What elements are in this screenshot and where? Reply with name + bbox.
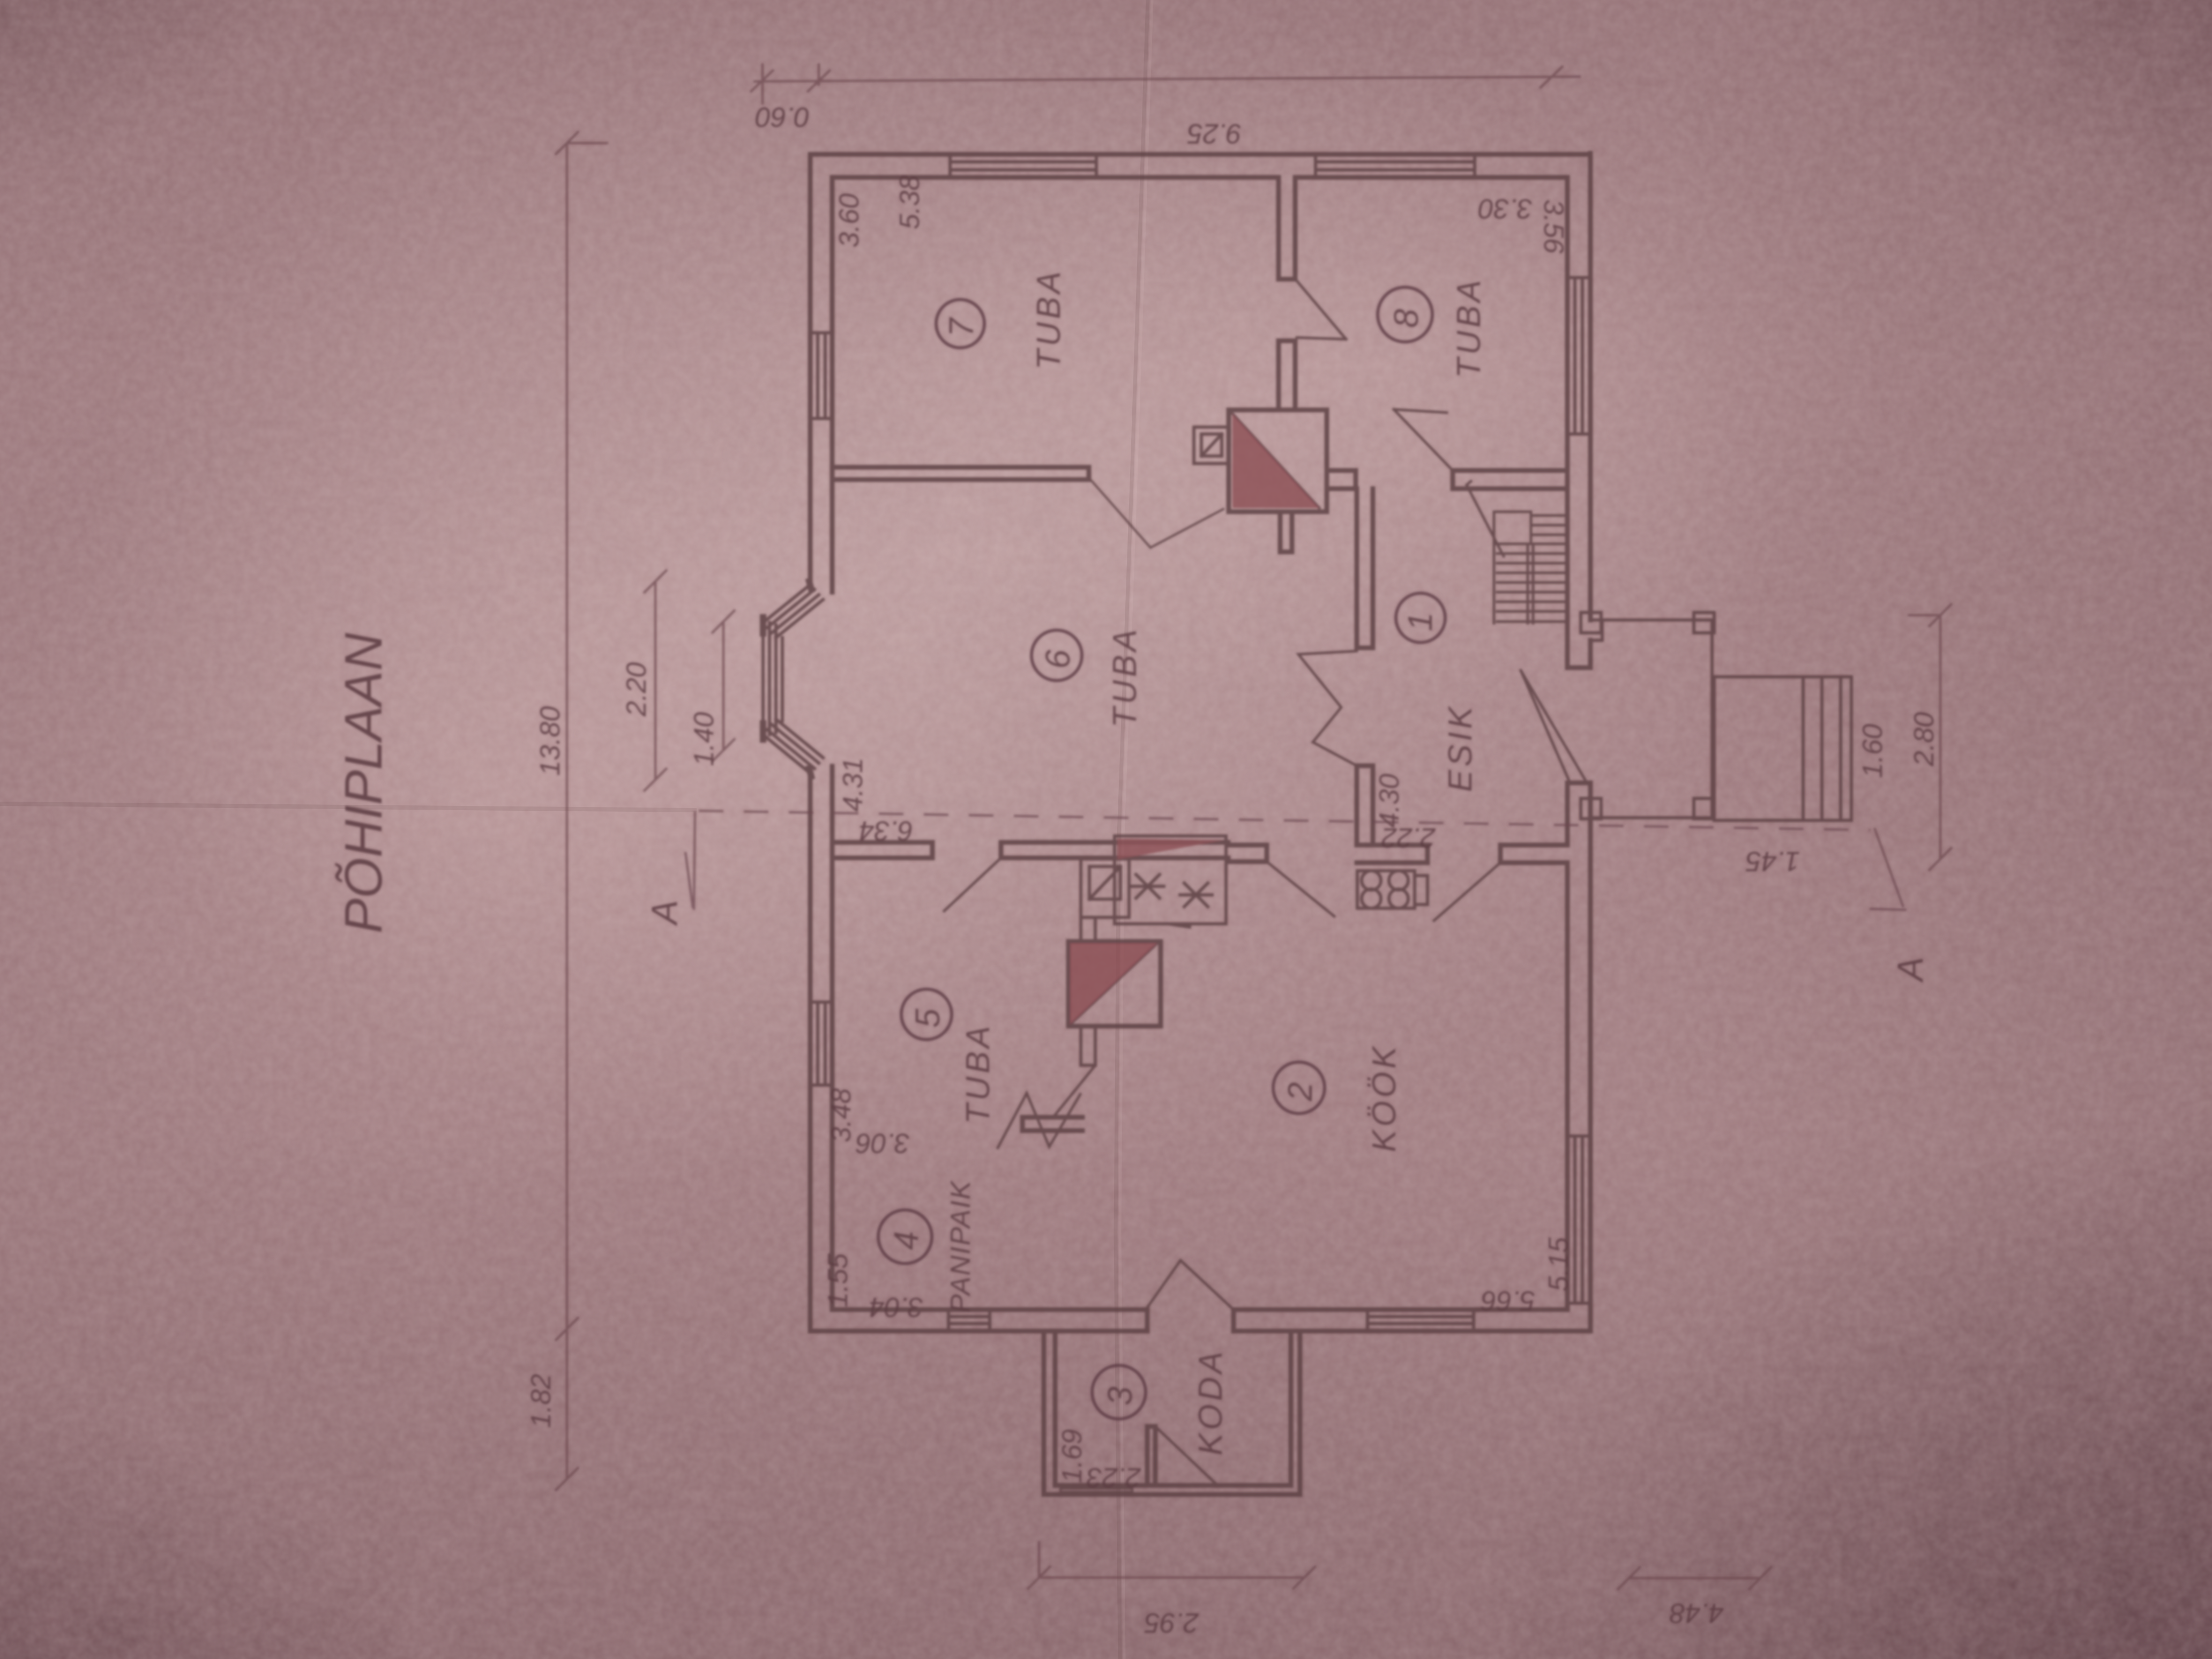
svg-text:3.60: 3.60 [834,193,865,248]
svg-text:3.48: 3.48 [826,1088,857,1142]
svg-text:4.48: 4.48 [1670,1597,1724,1628]
svg-text:KÖÖK: KÖÖK [1366,1043,1403,1152]
svg-text:ESIK: ESIK [1442,704,1479,792]
svg-text:1.69: 1.69 [1057,1429,1088,1483]
svg-text:1.55: 1.55 [823,1253,854,1307]
svg-text:6: 6 [1038,649,1077,669]
svg-text:3: 3 [1101,1386,1139,1406]
svg-text:2.23: 2.23 [1087,1462,1141,1493]
svg-text:5.38: 5.38 [894,175,925,229]
svg-text:TUBA: TUBA [1107,626,1144,728]
svg-text:1.60: 1.60 [1857,724,1888,778]
svg-text:4.30: 4.30 [1374,774,1405,828]
svg-text:A: A [644,900,685,926]
svg-text:4.31: 4.31 [838,758,869,812]
svg-text:13.80: 13.80 [535,706,566,776]
svg-text:1: 1 [1401,612,1439,631]
svg-text:2.95: 2.95 [1144,1607,1199,1638]
svg-text:5.15: 5.15 [1543,1237,1574,1291]
svg-text:7: 7 [942,317,981,337]
svg-text:6.34: 6.34 [859,815,913,846]
svg-text:2.20: 2.20 [621,662,652,717]
svg-text:5.66: 5.66 [1481,1285,1535,1316]
svg-text:TUBA: TUBA [1030,268,1067,370]
svg-text:1.82: 1.82 [526,1374,557,1428]
svg-text:PÕHIPLAAN: PÕHIPLAAN [334,633,393,933]
svg-text:9.25: 9.25 [1187,118,1242,149]
svg-text:0.60: 0.60 [756,101,810,132]
svg-text:3.30: 3.30 [1478,193,1533,224]
svg-text:1.40: 1.40 [689,712,720,766]
svg-text:4: 4 [887,1231,925,1250]
svg-text:5: 5 [908,1008,947,1028]
svg-text:2: 2 [1281,1082,1319,1102]
svg-text:KODA: KODA [1192,1348,1229,1455]
svg-text:3.06: 3.06 [856,1127,910,1159]
svg-text:PANIPAIK: PANIPAIK [945,1180,976,1313]
svg-text:A: A [1890,957,1931,983]
svg-text:2.80: 2.80 [1909,712,1940,767]
svg-text:3.04: 3.04 [869,1291,923,1322]
svg-text:3.56: 3.56 [1538,199,1569,253]
svg-text:8: 8 [1387,309,1425,328]
svg-text:TUBA: TUBA [960,1023,997,1124]
svg-text:2.22: 2.22 [1381,822,1436,853]
svg-text:TUBA: TUBA [1451,277,1488,378]
svg-text:1.45: 1.45 [1745,846,1800,877]
